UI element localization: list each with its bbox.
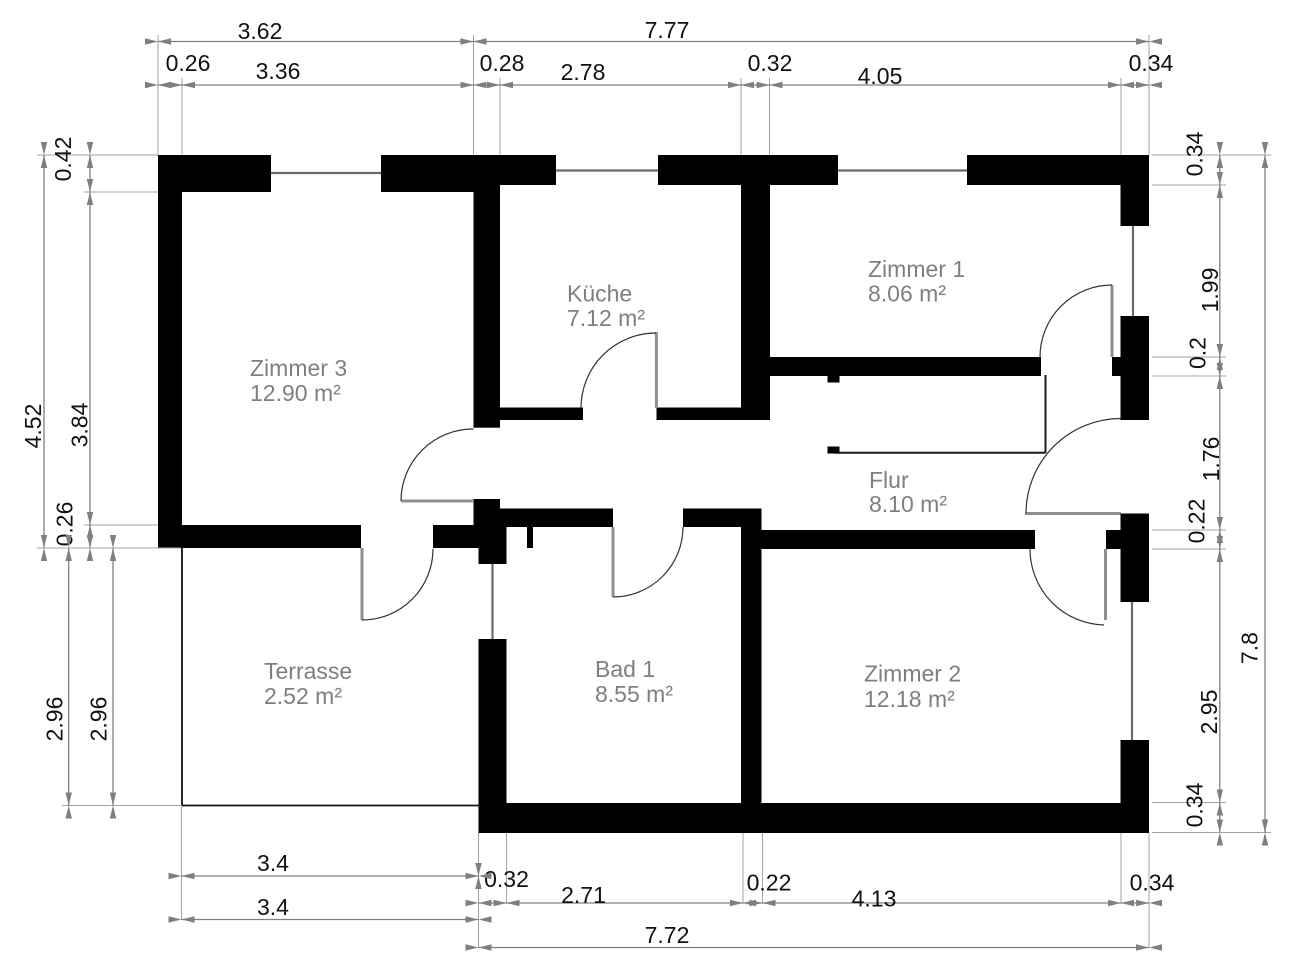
svg-text:12.18 m²: 12.18 m² [864, 686, 955, 712]
svg-text:0.34: 0.34 [1130, 870, 1175, 896]
svg-text:Flur: Flur [869, 467, 909, 493]
svg-text:8.06 m²: 8.06 m² [868, 281, 946, 307]
svg-text:3.36: 3.36 [256, 58, 301, 84]
svg-text:0.42: 0.42 [50, 137, 76, 182]
svg-text:8.10 m²: 8.10 m² [869, 491, 947, 517]
svg-text:0.28: 0.28 [480, 50, 525, 76]
svg-text:0.22: 0.22 [747, 870, 792, 896]
svg-text:7.72: 7.72 [645, 922, 690, 948]
svg-text:4.05: 4.05 [858, 63, 903, 89]
svg-text:7.8: 7.8 [1237, 632, 1263, 664]
svg-text:0.26: 0.26 [166, 50, 211, 76]
svg-text:Küche: Küche [567, 281, 632, 307]
svg-text:0.34: 0.34 [1182, 782, 1208, 827]
svg-text:0.22: 0.22 [1184, 499, 1210, 544]
svg-text:1.99: 1.99 [1197, 268, 1223, 313]
svg-text:0.2: 0.2 [1185, 337, 1211, 369]
svg-text:12.90 m²: 12.90 m² [250, 380, 341, 406]
svg-text:7.12 m²: 7.12 m² [567, 305, 645, 331]
svg-text:3.84: 3.84 [67, 402, 93, 447]
svg-text:2.95: 2.95 [1196, 690, 1222, 735]
svg-text:3.4: 3.4 [257, 894, 289, 920]
svg-text:2.96: 2.96 [42, 697, 68, 742]
svg-text:0.26: 0.26 [52, 502, 78, 547]
svg-text:Zimmer 1: Zimmer 1 [868, 256, 965, 282]
svg-text:8.55 m²: 8.55 m² [595, 681, 673, 707]
svg-text:Terrasse: Terrasse [264, 658, 352, 684]
svg-text:2.52 m²: 2.52 m² [264, 683, 342, 709]
svg-text:Zimmer 2: Zimmer 2 [864, 661, 961, 687]
svg-text:2.78: 2.78 [561, 59, 606, 85]
svg-text:2.96: 2.96 [86, 697, 112, 742]
svg-text:7.77: 7.77 [645, 17, 690, 43]
svg-text:0.34: 0.34 [1129, 50, 1174, 76]
svg-text:4.52: 4.52 [20, 404, 46, 449]
svg-text:3.4: 3.4 [257, 850, 289, 876]
svg-text:Zimmer 3: Zimmer 3 [250, 355, 347, 381]
svg-text:3.62: 3.62 [238, 18, 283, 44]
svg-text:Bad 1: Bad 1 [595, 656, 655, 682]
svg-text:0.34: 0.34 [1182, 131, 1208, 176]
svg-text:4.13: 4.13 [852, 886, 897, 912]
svg-text:2.71: 2.71 [561, 882, 606, 908]
svg-text:1.76: 1.76 [1198, 437, 1224, 482]
svg-text:0.32: 0.32 [748, 50, 793, 76]
